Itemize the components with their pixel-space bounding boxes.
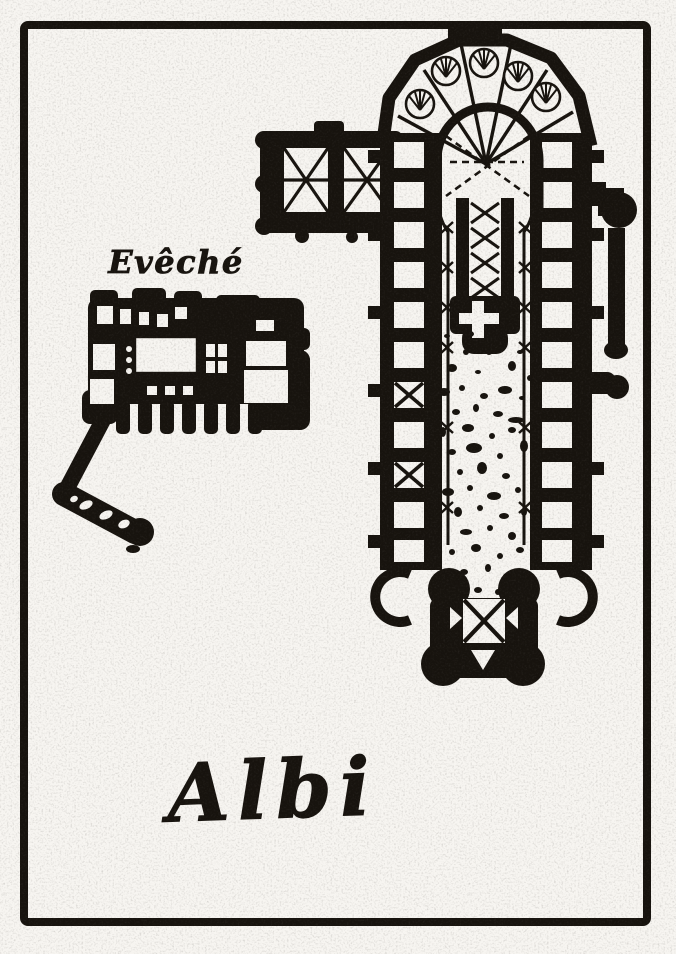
engraved-plan-page: Evêché Albi	[0, 0, 676, 954]
albi-plan-figure: Evêché Albi	[0, 0, 676, 954]
scan-grain-overlay	[0, 0, 676, 954]
